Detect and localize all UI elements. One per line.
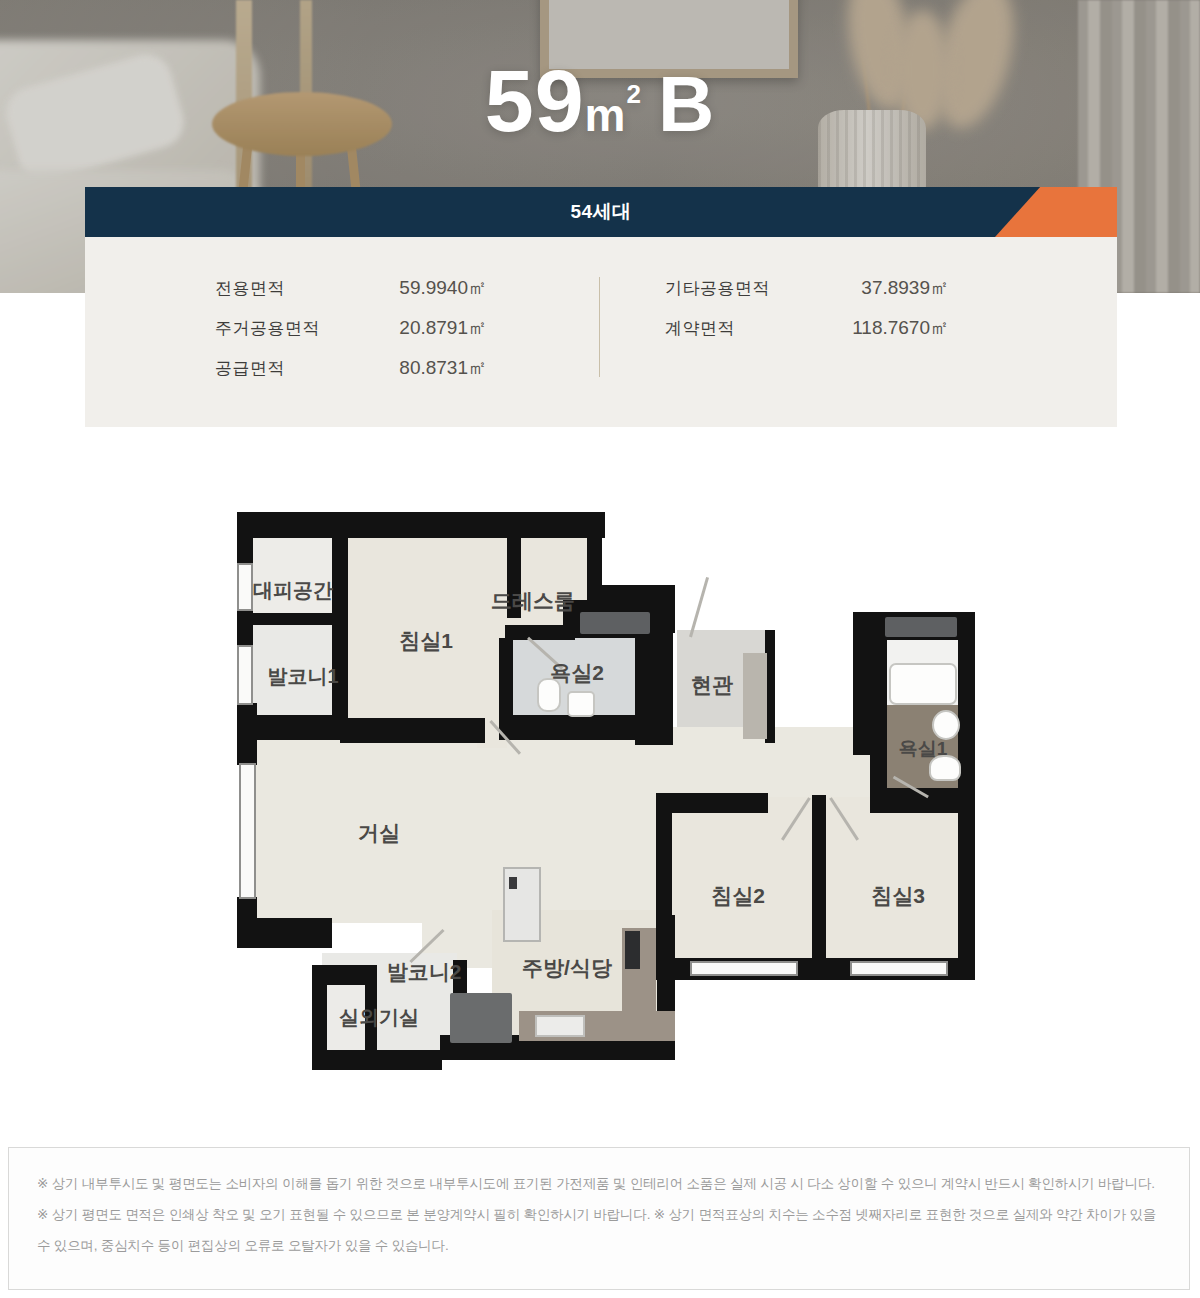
room-label-outdoor-unit: 실외기실 <box>339 1004 419 1031</box>
window <box>690 961 798 976</box>
area-label: 계약면적 <box>665 317 773 340</box>
wall <box>499 715 649 740</box>
floor-plan: 대피공간 발코니1 침실1 드레스룸 욕실2 현관 욕실1 거실 침실2 침실3… <box>237 505 977 1065</box>
panel-divider <box>599 277 600 377</box>
area-value: 118.7670㎡ <box>777 315 949 341</box>
wall <box>853 635 887 755</box>
page: 59m2B 54세대 전용면적 59.9940㎡ 주거공용면적 20.8791㎡… <box>0 0 1200 1298</box>
household-banner: 54세대 <box>85 187 1117 237</box>
window <box>239 763 256 899</box>
room-label-entrance: 현관 <box>691 671 733 699</box>
area-row: 기타공용면적 37.8939㎡ <box>665 275 949 297</box>
bath2-window <box>580 612 650 634</box>
wall <box>332 538 348 723</box>
sink <box>567 691 595 717</box>
wall <box>237 512 605 538</box>
room-living-floor <box>256 727 656 923</box>
kitchen-sink <box>535 1015 585 1037</box>
title-unit: m <box>585 89 627 141</box>
refrigerator <box>625 931 640 969</box>
room-label-kitchen: 주방/식당 <box>522 954 612 982</box>
wall <box>656 793 768 813</box>
wall <box>340 718 485 743</box>
area-label: 주거공용면적 <box>215 317 323 340</box>
wall <box>249 613 332 625</box>
window <box>237 563 253 611</box>
room-label-bath2: 욕실2 <box>550 659 604 687</box>
area-value: 59.9940㎡ <box>327 275 487 301</box>
room-label-living: 거실 <box>358 819 400 847</box>
wall <box>505 625 575 640</box>
entrance-door-swing <box>689 577 709 637</box>
area-label: 공급면적 <box>215 357 323 380</box>
disclaimer-box: ※ 상기 내부투시도 및 평면도는 소비자의 이해를 돕기 위한 것으로 내부투… <box>8 1147 1190 1290</box>
wall <box>312 1050 442 1070</box>
area-info-panel: 전용면적 59.9940㎡ 주거공용면적 20.8791㎡ 공급면적 80.87… <box>85 237 1117 427</box>
area-row: 전용면적 59.9940㎡ <box>215 275 487 297</box>
bath1-window <box>885 617 957 637</box>
room-label-bedroom2: 침실2 <box>711 882 765 910</box>
room-label-bath1: 욕실1 <box>899 736 948 762</box>
area-row: 주거공용면적 20.8791㎡ <box>215 315 487 337</box>
wall <box>237 512 253 565</box>
utility-box <box>450 993 512 1043</box>
household-count: 54세대 <box>85 187 1117 237</box>
room-bedroom3-floor <box>817 797 967 962</box>
wall <box>312 965 377 985</box>
window <box>850 961 948 976</box>
area-value: 37.8939㎡ <box>777 275 949 301</box>
page-title: 59m2B <box>0 56 1200 150</box>
cabinet-handle <box>509 877 517 889</box>
room-label-bedroom1: 침실1 <box>399 627 453 655</box>
area-value: 80.8731㎡ <box>327 355 487 381</box>
wall <box>245 715 340 740</box>
wall <box>237 918 332 948</box>
wall <box>958 793 975 978</box>
room-label-balcony2: 발코니2 <box>387 958 462 986</box>
room-label-escape: 대피공간 <box>253 577 333 604</box>
area-label: 전용면적 <box>215 277 323 300</box>
title-variant: B <box>658 60 715 148</box>
area-row: 공급면적 80.8731㎡ <box>215 355 487 377</box>
bathtub <box>889 663 957 705</box>
title-exponent: 2 <box>626 79 641 109</box>
area-column-right: 기타공용면적 37.8939㎡ 계약면적 118.7670㎡ <box>665 275 949 355</box>
area-column-left: 전용면적 59.9940㎡ 주거공용면적 20.8791㎡ 공급면적 80.87… <box>215 275 487 395</box>
area-row: 계약면적 118.7670㎡ <box>665 315 949 337</box>
disclaimer-text: ※ 상기 내부투시도 및 평면도는 소비자의 이해를 돕기 위한 것으로 내부투… <box>9 1148 1189 1281</box>
room-label-bedroom3: 침실3 <box>871 882 925 910</box>
area-label: 기타공용면적 <box>665 277 773 300</box>
window <box>237 645 253 705</box>
title-size: 59 <box>485 51 585 150</box>
wall <box>812 795 826 973</box>
area-value: 20.8791㎡ <box>327 315 487 341</box>
room-label-balcony1: 발코니1 <box>267 663 338 690</box>
room-label-dressroom: 드레스룸 <box>491 587 575 615</box>
shoe-cabinet <box>743 653 767 739</box>
